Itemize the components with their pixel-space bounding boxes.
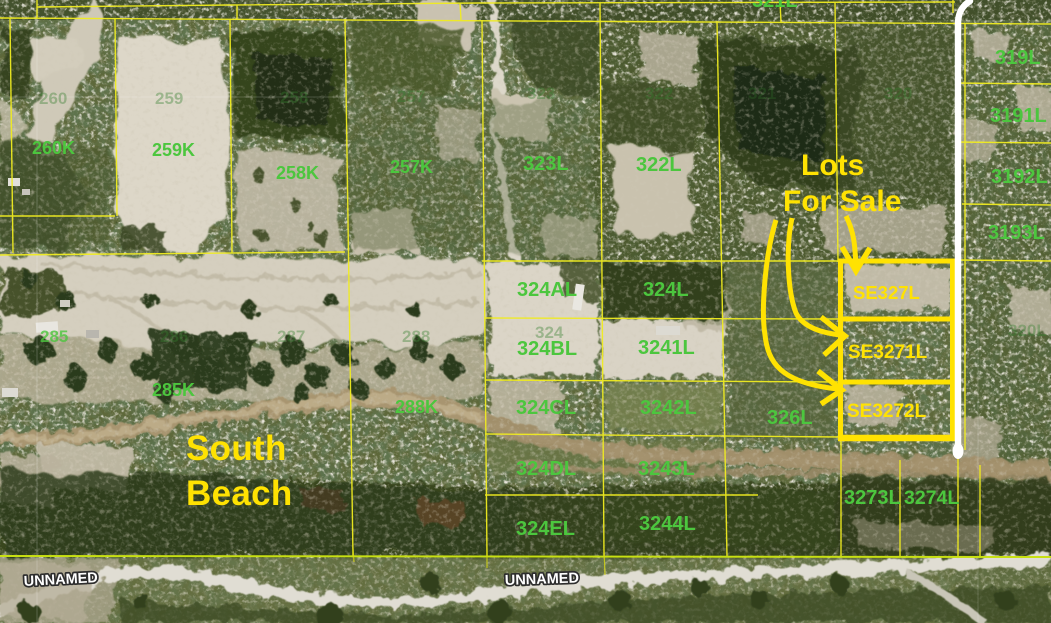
svg-text:3243L: 3243L xyxy=(638,458,695,480)
svg-text:288: 288 xyxy=(402,327,430,346)
svg-text:324EL: 324EL xyxy=(516,518,575,540)
svg-text:3273L: 3273L xyxy=(844,487,901,509)
svg-text:259: 259 xyxy=(155,89,183,108)
svg-text:257K: 257K xyxy=(390,157,433,177)
svg-text:324CL: 324CL xyxy=(516,397,576,419)
svg-text:287: 287 xyxy=(277,327,305,346)
svg-text:3241L: 3241L xyxy=(638,337,695,359)
svg-text:259K: 259K xyxy=(152,140,195,160)
svg-text:258K: 258K xyxy=(276,163,319,183)
svg-text:South: South xyxy=(186,429,287,468)
svg-text:3193L: 3193L xyxy=(988,222,1045,244)
svg-text:322: 322 xyxy=(645,84,673,103)
svg-text:285: 285 xyxy=(40,327,68,346)
svg-text:3191L: 3191L xyxy=(990,105,1047,127)
svg-text:286: 286 xyxy=(160,327,188,346)
svg-text:260K: 260K xyxy=(32,138,75,158)
svg-text:SE3271L: SE3271L xyxy=(848,342,928,363)
svg-text:321L: 321L xyxy=(752,0,798,12)
svg-text:SE327L: SE327L xyxy=(853,282,920,303)
svg-text:326L: 326L xyxy=(767,407,813,429)
svg-text:285K: 285K xyxy=(152,380,195,400)
svg-text:3274L: 3274L xyxy=(904,487,959,509)
svg-text:UNNAMED: UNNAMED xyxy=(505,570,580,589)
svg-text:323L: 323L xyxy=(523,153,569,175)
svg-text:323: 323 xyxy=(527,84,555,103)
svg-text:For Sale: For Sale xyxy=(783,185,901,218)
svg-text:324DL: 324DL xyxy=(516,458,576,480)
svg-text:3192L: 3192L xyxy=(991,166,1048,188)
svg-text:3244L: 3244L xyxy=(639,513,696,535)
svg-text:258: 258 xyxy=(280,88,308,107)
svg-text:324AL: 324AL xyxy=(517,279,577,301)
svg-text:319L: 319L xyxy=(995,47,1041,69)
svg-text:257: 257 xyxy=(397,87,425,106)
svg-text:320: 320 xyxy=(884,84,912,103)
svg-text:322L: 322L xyxy=(636,154,682,176)
svg-text:324L: 324L xyxy=(643,279,689,301)
svg-text:260: 260 xyxy=(39,89,67,108)
svg-text:288K: 288K xyxy=(395,397,438,417)
svg-text:320L: 320L xyxy=(1008,321,1047,340)
svg-text:324BL: 324BL xyxy=(517,338,577,360)
svg-text:3242L: 3242L xyxy=(640,397,697,419)
svg-text:321: 321 xyxy=(748,84,776,103)
svg-text:Lots: Lots xyxy=(801,149,864,182)
svg-text:Beach: Beach xyxy=(186,474,293,513)
svg-text:SE3272L: SE3272L xyxy=(847,401,927,422)
